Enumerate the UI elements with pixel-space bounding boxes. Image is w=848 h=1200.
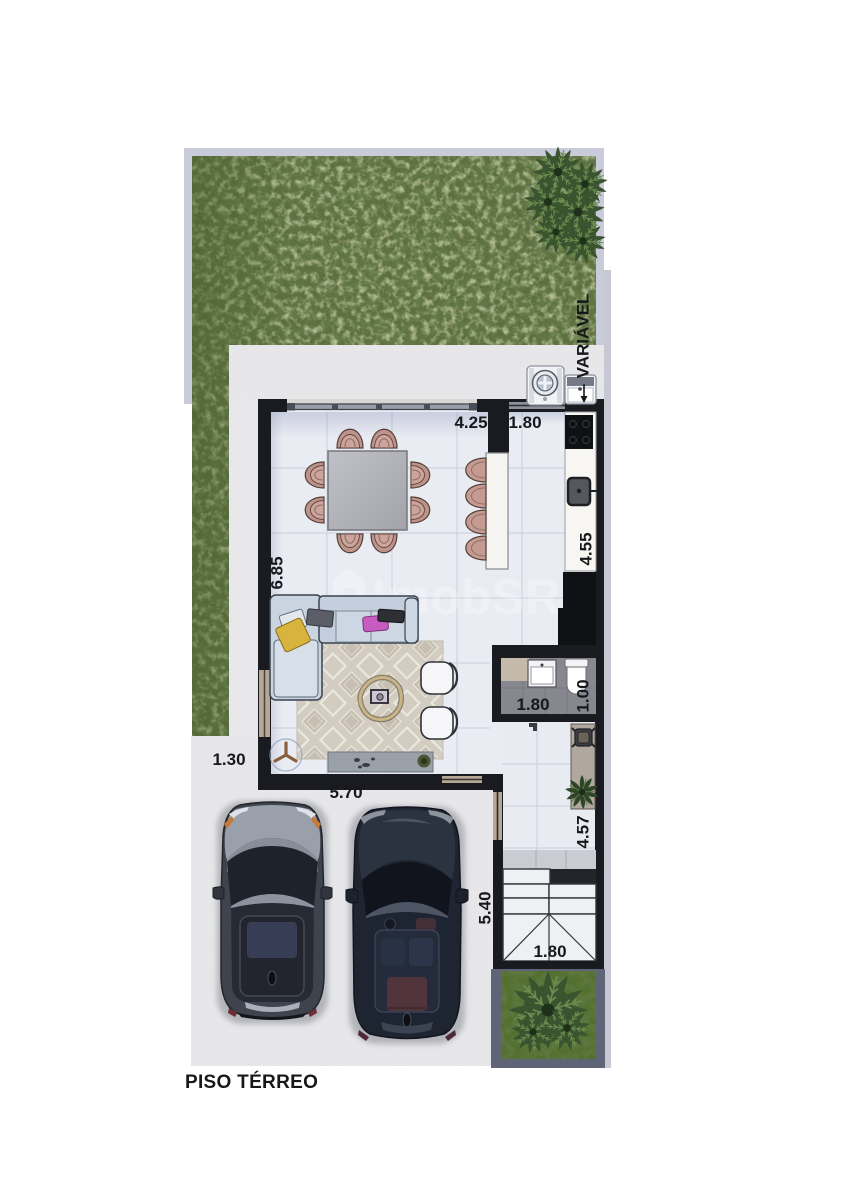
svg-text:1.80: 1.80 [508,413,541,432]
svg-text:1.00: 1.00 [573,679,592,712]
svg-text:4.57: 4.57 [573,815,592,848]
svg-text:4.55: 4.55 [576,532,595,565]
svg-text:4.25: 4.25 [454,413,487,432]
svg-text:1.80: 1.80 [533,942,566,961]
svg-text:6.85: 6.85 [267,556,286,589]
svg-text:VARIÁVEL: VARIÁVEL [573,294,592,379]
svg-text:PISO TÉRREO: PISO TÉRREO [185,1071,318,1093]
svg-text:5.40: 5.40 [475,891,494,924]
svg-text:5.70: 5.70 [329,783,362,802]
svg-text:1.30: 1.30 [212,750,245,769]
svg-text:1.80: 1.80 [516,695,549,714]
